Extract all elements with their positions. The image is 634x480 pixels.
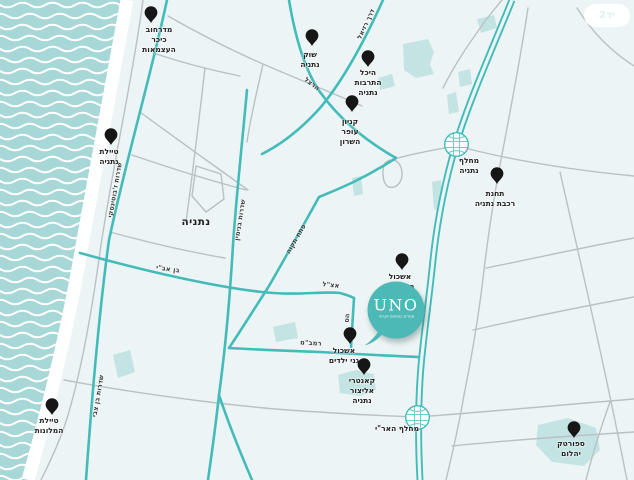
road-label-5: בן אב"י <box>156 263 181 274</box>
sportek-yahalom-pin-icon[interactable] <box>567 421 581 439</box>
heichal-hatarbut-netanya-label: היכל התרבות נתניה <box>354 68 381 97</box>
tachanat-rakevet-netanya-label: תחנת רכבת נתניה <box>475 189 515 209</box>
kanyon-ofer-hasharon-pin-icon[interactable] <box>345 95 359 113</box>
road-label-7: הס <box>343 313 352 323</box>
road-label-6: אצ"ל <box>322 280 340 290</box>
uno-bubble-tail <box>365 327 387 347</box>
shuk-netanya-label: שוק נתניה <box>300 50 319 70</box>
tayelet-hamalonot-label: טיילת המלונות <box>35 416 64 436</box>
mechlef-haari-label: מחלף האר"י <box>375 424 419 434</box>
uno-tagline: מגורים במתחם יוקרתי <box>378 315 413 319</box>
eshkol-ganei-yeladim-pin-icon[interactable] <box>343 327 357 345</box>
eshkol-batei-sefer-pin-icon[interactable] <box>395 253 409 271</box>
road-label-3: שדרות בנימין <box>233 199 247 241</box>
mechlef-netanya-label: מחלף נתניה <box>459 156 479 176</box>
midrahov-kikar-haatzmaut-label: מדרחוב כיכר העצמאות <box>142 25 176 54</box>
uno-logo-text: UNO <box>373 298 418 314</box>
poi-layer: מדרחוב כיכר העצמאותשוק נתניההיכל התרבות … <box>0 0 634 480</box>
heichal-hatarbut-netanya-pin-icon[interactable] <box>361 50 375 68</box>
sportek-yahalom-label: ספורטק יהלום <box>557 439 585 459</box>
road-label-1: הרצל <box>303 76 322 93</box>
uno-project-marker[interactable]: UNO מגורים במתחם יוקרתי <box>368 282 425 339</box>
road-label-2: שדרות ז'בוטינסקי <box>106 162 124 219</box>
eshkol-ganei-yeladim-label: אשכול גני ילדים <box>329 346 359 366</box>
kanyon-ofer-hasharon-label: קניון עופר השרון <box>340 117 361 146</box>
road-label-0: דרך רזיאל <box>355 8 376 41</box>
kantri-elitzur-netanya-label: קאנטרי אליצור נתניה <box>349 376 375 405</box>
shuk-netanya-pin-icon[interactable] <box>305 29 319 47</box>
mechlef-netanya-interchange-icon[interactable] <box>443 131 470 158</box>
kantri-elitzur-netanya-pin-icon[interactable] <box>357 358 371 376</box>
midrahov-kikar-haatzmaut-pin-icon[interactable] <box>144 6 158 24</box>
tayelet-netanya-pin-icon[interactable] <box>104 128 118 146</box>
road-label-8: רמב"ם <box>300 338 322 347</box>
watermark-logo: יד2 <box>584 4 630 27</box>
tachanat-rakevet-netanya-pin-icon[interactable] <box>490 167 504 185</box>
map-canvas[interactable]: נתניה מדרחוב כיכר העצמאותשוק נתניההיכל ה… <box>0 0 634 480</box>
road-label-4: פתח תקוה <box>284 223 307 256</box>
road-label-9: שדרות בן צבי <box>90 374 105 417</box>
tayelet-hamalonot-pin-icon[interactable] <box>45 398 59 416</box>
